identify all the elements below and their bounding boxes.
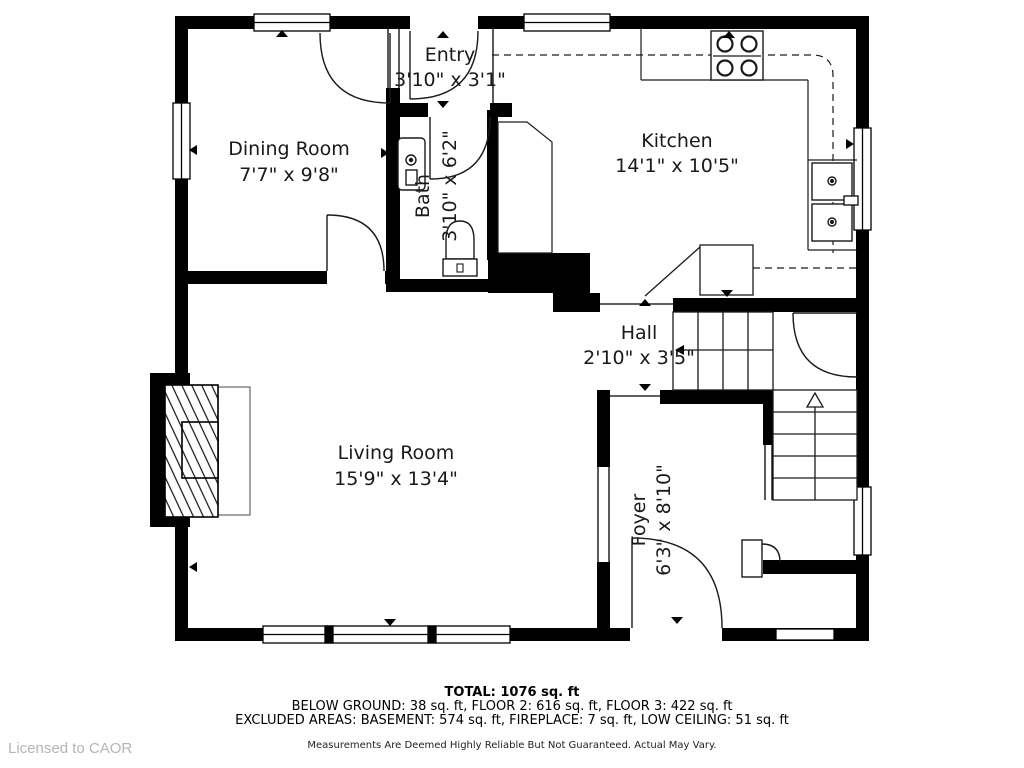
faucet-icon [844, 196, 858, 205]
stove [711, 31, 763, 80]
svg-text:14'1" x 10'5": 14'1" x 10'5" [615, 155, 739, 177]
room-label-foyer: Foyer 6'3" x 8'10" [628, 464, 675, 576]
kitchen-sink [812, 163, 858, 241]
disclaimer-text: Measurements Are Deemed Highly Reliable … [0, 740, 1024, 751]
svg-text:6'3" x 8'10": 6'3" x 8'10" [653, 464, 675, 576]
door-dining-to-living [327, 215, 384, 271]
svg-text:7'7" x 9'8": 7'7" x 9'8" [239, 164, 339, 186]
total-area-text: TOTAL: 1076 sq. ft [0, 686, 1024, 700]
svg-text:Living Room: Living Room [338, 442, 455, 464]
room-label-entry: Entry 3'10" x 3'1" [394, 44, 506, 91]
license-watermark: Licensed to CAOR [8, 740, 132, 757]
window-kitchen-top [524, 14, 610, 31]
svg-text:Bath: Bath [412, 174, 434, 218]
excluded-areas-text: EXCLUDED AREAS: BASEMENT: 574 sq. ft, FI… [0, 714, 1024, 728]
doors [320, 31, 857, 628]
window-living-bottom [263, 626, 510, 643]
kitchen-cabinet-corner [645, 245, 753, 296]
room-label-kitchen: Kitchen 14'1" x 10'5" [615, 130, 739, 177]
door-kitchen-to-stairs [793, 313, 857, 377]
svg-text:3'10" x 3'1": 3'10" x 3'1" [394, 69, 506, 91]
opening-basement-right [776, 629, 834, 640]
fireplace [165, 385, 250, 517]
room-label-dining: Dining Room 7'7" x 9'8" [228, 138, 349, 186]
fireplace-hearth [218, 387, 250, 515]
floor-plan-drawing: Dining Room 7'7" x 9'8" Entry 3'10" x 3'… [0, 0, 1024, 768]
svg-text:3'10" x 6'2": 3'10" x 6'2" [439, 130, 461, 242]
door-front-foyer [632, 538, 722, 628]
stairs-up-foyer [773, 390, 857, 500]
svg-text:Entry: Entry [425, 44, 476, 66]
room-label-living: Living Room 15'9" x 13'4" [334, 442, 458, 490]
svg-text:Hall: Hall [621, 322, 658, 344]
svg-text:2'10" x 3'5": 2'10" x 3'5" [583, 347, 695, 369]
svg-text:Kitchen: Kitchen [641, 130, 712, 152]
window-dining-left [173, 103, 190, 179]
floor-plan-page: Dining Room 7'7" x 9'8" Entry 3'10" x 3'… [0, 0, 1024, 768]
area-summary: TOTAL: 1076 sq. ft BELOW GROUND: 38 sq. … [0, 686, 1024, 751]
window-dining-top [254, 14, 330, 31]
svg-text:Foyer: Foyer [628, 494, 650, 547]
pantry [498, 122, 552, 253]
svg-text:Dining Room: Dining Room [228, 138, 349, 160]
door-entry-to-dining [320, 33, 390, 103]
floor-breakdown-text: BELOW GROUND: 38 sq. ft, FLOOR 2: 616 sq… [0, 700, 1024, 714]
svg-text:15'9" x 13'4": 15'9" x 13'4" [334, 468, 458, 490]
window-kitchen-right [854, 128, 871, 230]
